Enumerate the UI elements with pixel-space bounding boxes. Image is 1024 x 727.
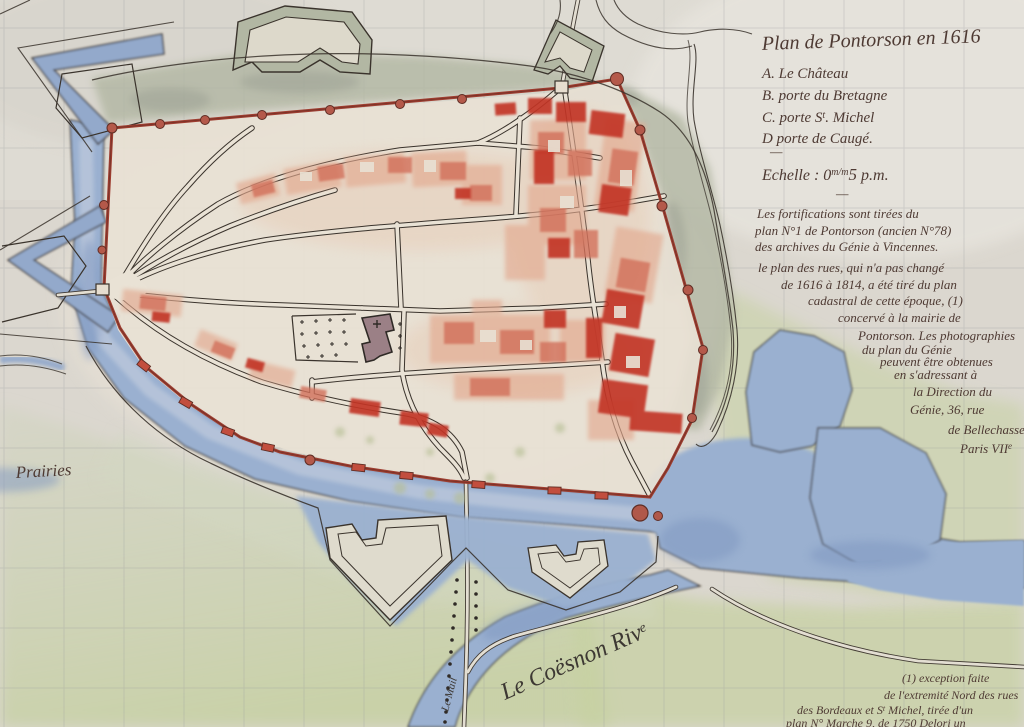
svg-text:A. Le Château: A. Le Château — [761, 66, 848, 82]
svg-text:de l'extremité Nord des rues: de l'extremité Nord des rues — [884, 688, 1019, 702]
svg-text:plan N°1 de Pontorson (ancien: plan N°1 de Pontorson (ancien N°78) — [754, 223, 951, 238]
svg-text:de Bellechasse: de Bellechasse — [948, 422, 1024, 437]
svg-text:concervé à la mairie de: concervé à la mairie de — [838, 310, 961, 325]
svg-text:—: — — [835, 187, 849, 202]
svg-text:le plan des rues, qui n'a pas: le plan des rues, qui n'a pas changé — [758, 260, 945, 275]
svg-text:C. porte St. Michel: C. porte St. Michel — [762, 110, 874, 126]
svg-text:en s'adressant à: en s'adressant à — [894, 367, 978, 382]
svg-text:des archives du Génie à Vincen: des archives du Génie à Vincennes. — [755, 239, 938, 254]
svg-text:plan N° Marche 9, de 1750 Delo: plan N° Marche 9, de 1750 Delori un — [785, 716, 966, 727]
svg-text:de 1616 à 1814, a été tiré du: de 1616 à 1814, a été tiré du plan — [781, 277, 957, 292]
svg-text:Pontorson. Les photographies: Pontorson. Les photographies — [857, 328, 1015, 343]
svg-text:Génie, 36, rue: Génie, 36, rue — [910, 402, 985, 417]
svg-text:Prairies: Prairies — [14, 460, 72, 482]
svg-text:Paris VIIe: Paris VIIe — [959, 441, 1012, 456]
svg-text:cadastral de cette époque, (1): cadastral de cette époque, (1) — [808, 293, 963, 308]
svg-text:(1) exception faite: (1) exception faite — [902, 671, 990, 685]
svg-text:—: — — [769, 145, 783, 160]
svg-text:Les fortifications sont tirées: Les fortifications sont tirées du — [756, 206, 919, 221]
svg-text:Echelle : 0m/m5 p.m.: Echelle : 0m/m5 p.m. — [761, 165, 889, 184]
svg-text:B. porte du Bretagne: B. porte du Bretagne — [762, 88, 888, 104]
svg-text:la Direction du: la Direction du — [913, 384, 992, 399]
svg-text:des Bordeaux et St Michel, tir: des Bordeaux et St Michel, tirée d'un — [797, 703, 973, 717]
